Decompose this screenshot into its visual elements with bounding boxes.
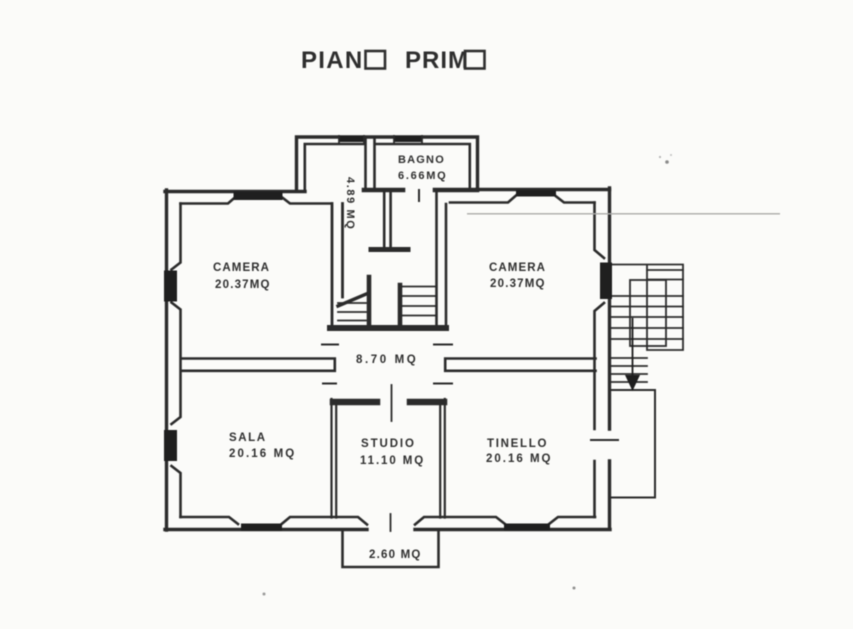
svg-text:20.37MQ: 20.37MQ: [490, 278, 546, 290]
svg-text:11.10 MQ: 11.10 MQ: [360, 455, 425, 467]
svg-text:STUDIO: STUDIO: [361, 438, 416, 450]
svg-text:20.37MQ: 20.37MQ: [215, 279, 271, 291]
svg-text:TINELLO: TINELLO: [487, 438, 548, 450]
svg-text:4.89 MQ: 4.89 MQ: [344, 177, 356, 230]
svg-text:BAGNO: BAGNO: [398, 154, 445, 166]
svg-text:8.70 MQ: 8.70 MQ: [356, 354, 418, 366]
svg-text:PIAN: PIAN: [301, 47, 364, 74]
svg-text:CAMERA: CAMERA: [213, 262, 270, 274]
svg-text:CAMERA: CAMERA: [489, 262, 546, 274]
svg-text:2.60 MQ: 2.60 MQ: [369, 549, 422, 561]
svg-text:6.66MQ: 6.66MQ: [398, 170, 447, 182]
svg-text:PRIM: PRIM: [405, 47, 469, 74]
svg-text:20.16 MQ: 20.16 MQ: [486, 453, 553, 465]
svg-text:SALA: SALA: [229, 432, 267, 444]
svg-text:20.16 MQ: 20.16 MQ: [229, 448, 296, 460]
